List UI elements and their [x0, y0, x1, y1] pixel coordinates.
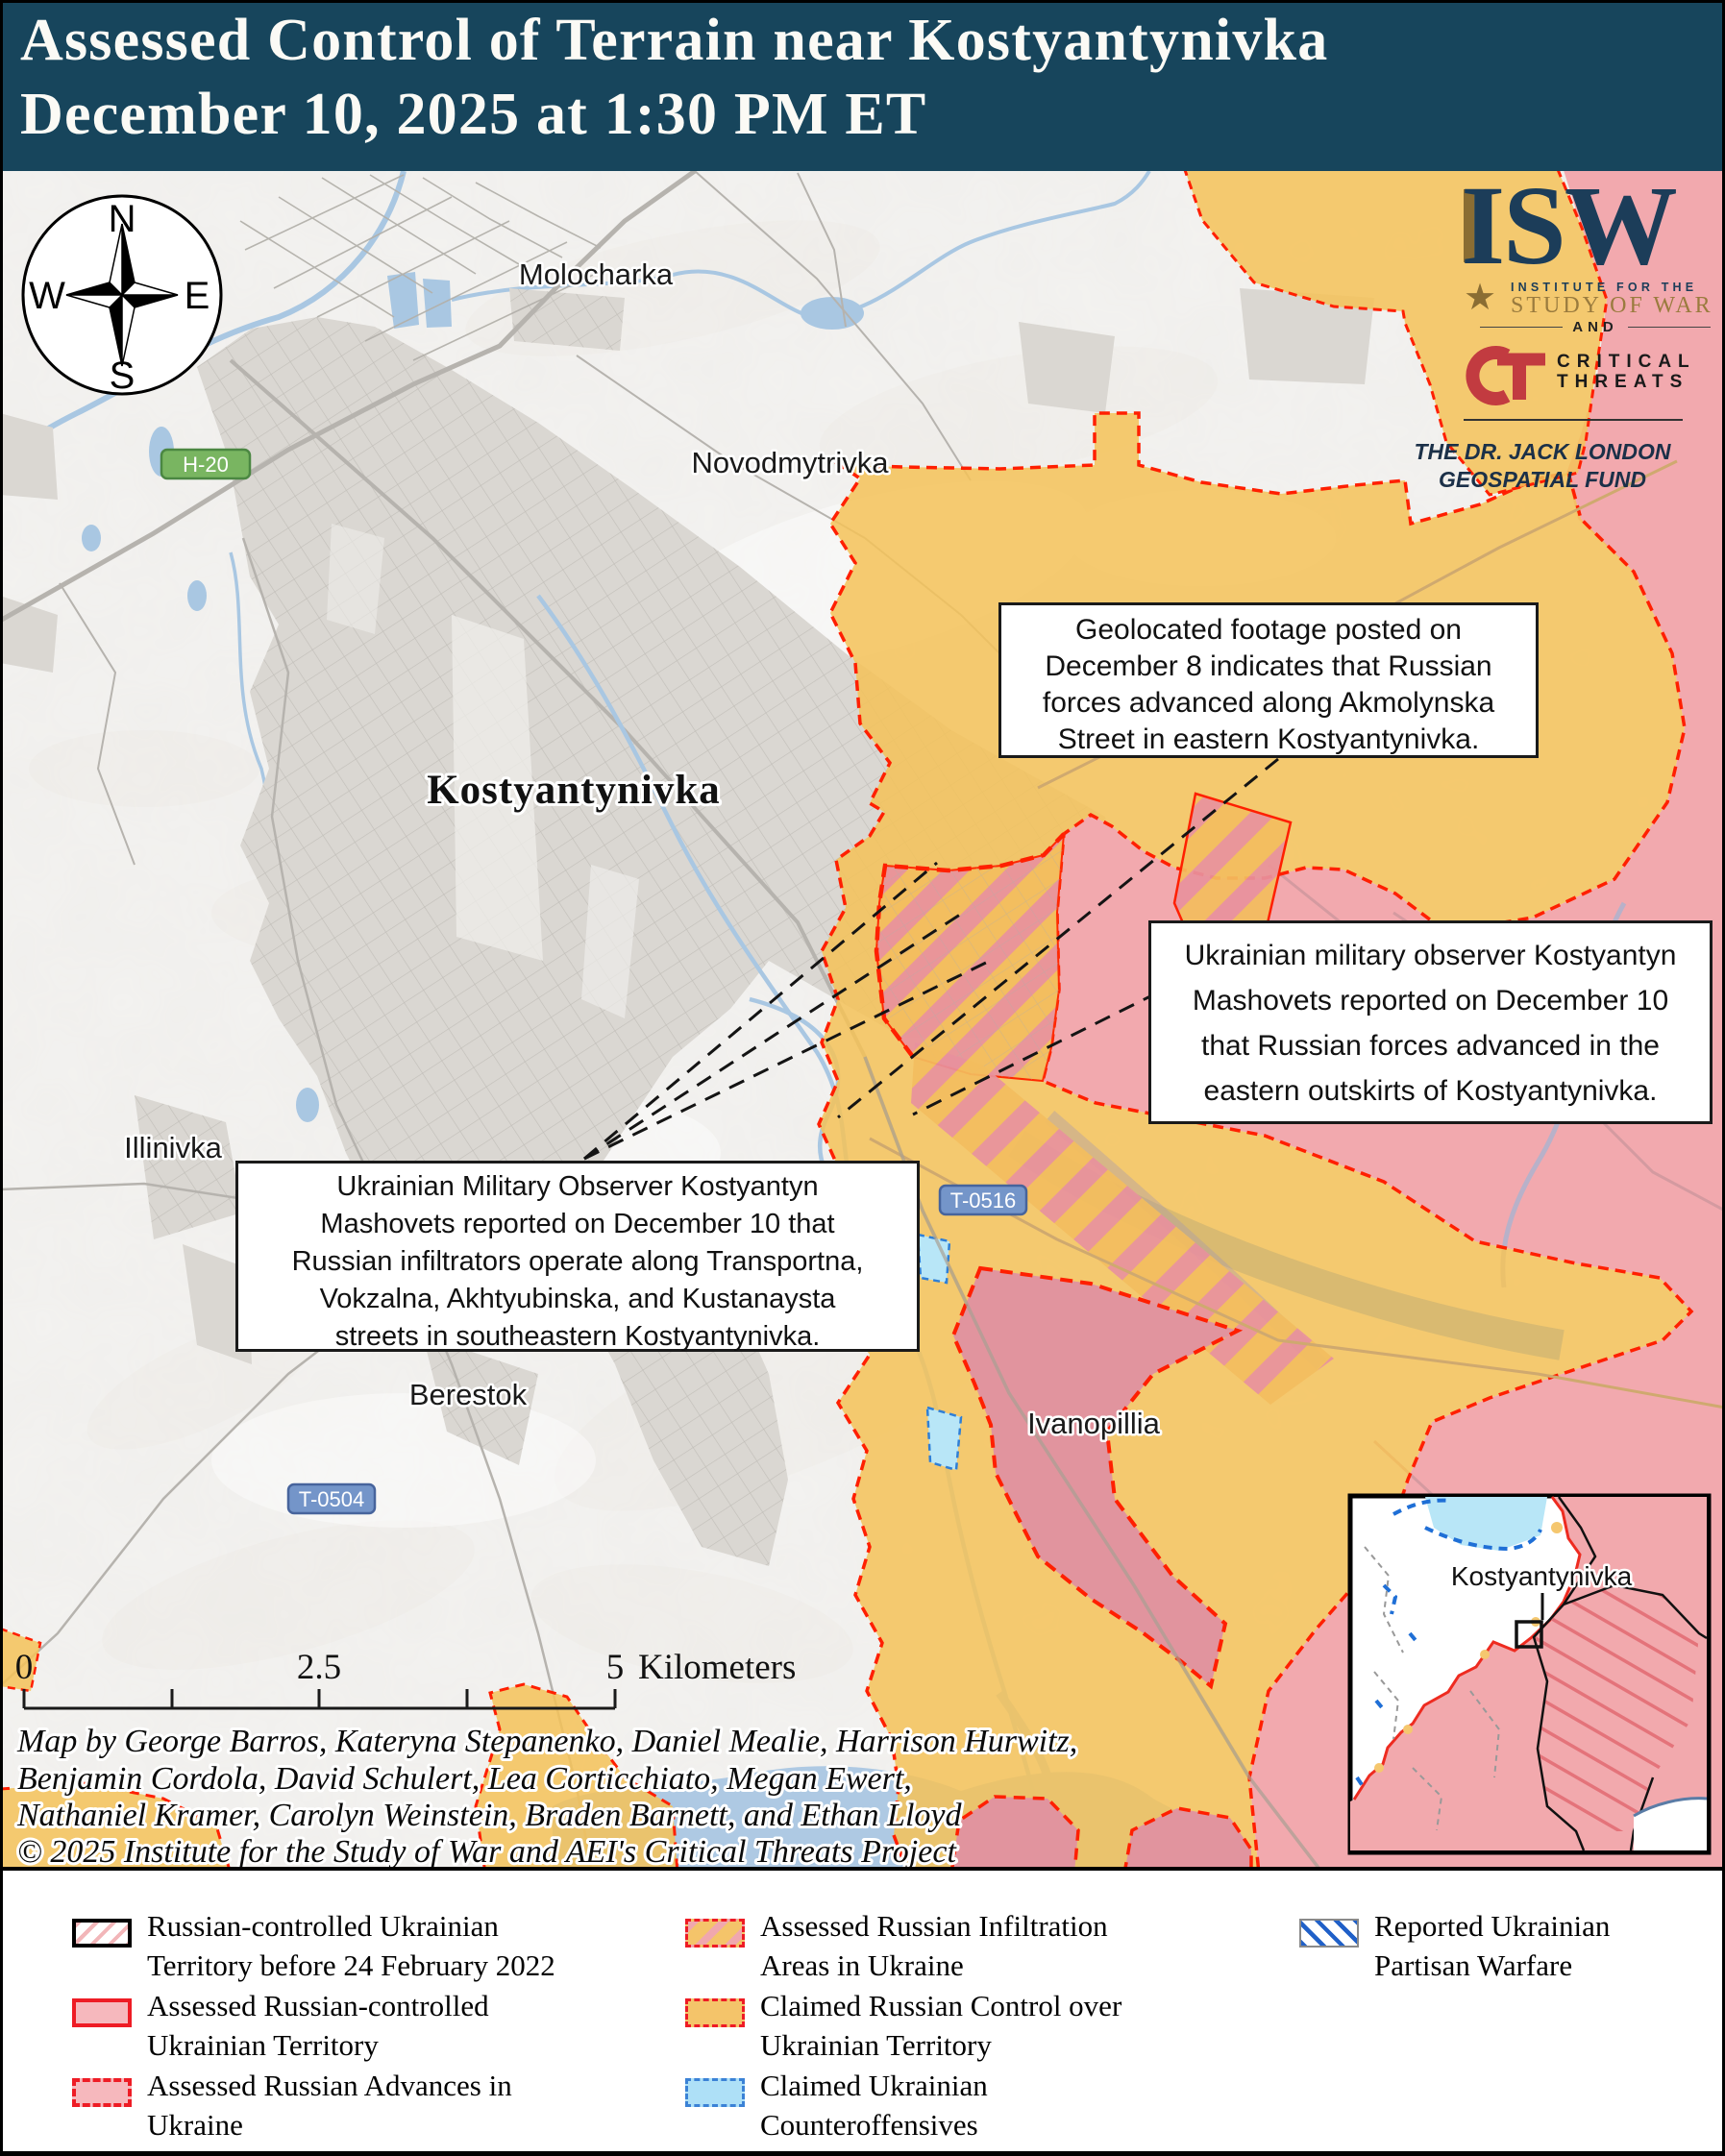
- svg-text:Ivanopillia: Ivanopillia: [1027, 1407, 1161, 1440]
- svg-text:H-20: H-20: [183, 453, 229, 477]
- svg-text:S: S: [110, 355, 136, 397]
- svg-text:Benjamin Cordola, David Schule: Benjamin Cordola, David Schulert, Lea Co…: [17, 1761, 912, 1797]
- svg-text:5: 5: [606, 1648, 625, 1687]
- svg-text:Kilometers: Kilometers: [638, 1648, 796, 1687]
- svg-text:W: W: [29, 275, 65, 317]
- svg-text:Novodmytrivka: Novodmytrivka: [692, 446, 890, 479]
- svg-text:T-0504: T-0504: [299, 1487, 365, 1511]
- svg-text:E: E: [185, 275, 210, 317]
- svg-text:Kostyantynivka: Kostyantynivka: [427, 768, 721, 813]
- svg-text:Kostyantynivka: Kostyantynivka: [1451, 1561, 1633, 1591]
- svg-text:Nathaniel Kramer, Carolyn Wein: Nathaniel Kramer, Carolyn Weinstein, Bra…: [16, 1798, 962, 1833]
- svg-text:2.5: 2.5: [297, 1648, 341, 1687]
- svg-text:Map by George Barros, Kateryna: Map by George Barros, Kateryna Stepanenk…: [16, 1724, 1077, 1759]
- svg-text:T-0516: T-0516: [950, 1188, 1017, 1213]
- svg-text:Illinivka: Illinivka: [124, 1131, 222, 1164]
- svg-text:Berestok: Berestok: [409, 1378, 528, 1411]
- svg-text:© 2025 Institute for the Study: © 2025 Institute for the Study of War an…: [17, 1834, 957, 1867]
- svg-text:0: 0: [15, 1648, 34, 1687]
- svg-text:N: N: [109, 198, 136, 240]
- svg-text:Molocharka: Molocharka: [519, 257, 674, 291]
